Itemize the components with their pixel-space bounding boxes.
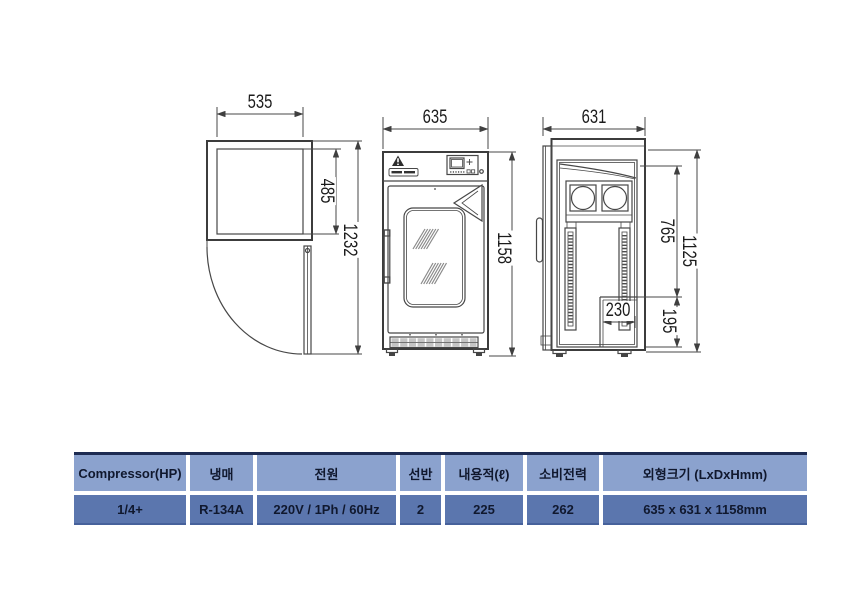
spec-header-dimensions: 외형크기 (LxDxHmm) [603,455,807,491]
ventilation-grille [390,334,478,348]
spec-sheet: 535 485 1232 635 1158 631 765 1125 230 1… [0,0,860,600]
dim-label-top-depth: 485 [316,177,336,205]
dim-label-front-height: 1158 [493,231,513,266]
dim-label-recess-height: 195 [658,307,678,335]
door-window [404,208,465,307]
fan-assembly [566,181,632,228]
dim-label-side-depth: 631 [580,108,608,128]
spec-value-shelf: 2 [400,495,441,525]
dim-label-top-width: 535 [246,93,274,113]
fan-circle-right [604,187,627,210]
spec-header-compressor: Compressor(HP) [74,455,186,491]
spec-header-refrigerant: 냉매 [190,455,253,491]
dim-label-door-swing: 1232 [339,222,359,258]
power-indicator [480,170,484,174]
drawing-canvas [0,0,860,445]
spec-value-refrigerant: R-134A [190,495,253,525]
side-door-handle [537,218,543,262]
spec-value-consumption: 262 [527,495,599,525]
dim-label-recess-depth: 230 [604,301,632,321]
warning-icon [392,156,404,167]
spec-value-power: 220V / 1Ph / 60Hz [257,495,396,525]
dim-label-side-height: 1125 [678,234,698,269]
door-handle [384,230,390,283]
name-plate [389,169,418,177]
feet [387,349,485,356]
technical-drawing: 535 485 1232 635 1158 631 765 1125 230 1… [0,0,860,445]
glass-reflection [413,229,447,284]
side-feet [553,350,631,357]
spec-table: Compressor(HP) 냉매 전원 선반 내용적(ℓ) 소비전력 외형크기… [74,452,807,525]
spec-table-grid: Compressor(HP) 냉매 전원 선반 내용적(ℓ) 소비전력 외형크기… [74,455,807,525]
spec-header-shelf: 선반 [400,455,441,491]
spec-value-capacity: 225 [445,495,523,525]
dim-label-front-width: 635 [421,108,449,128]
spec-header-power: 전원 [257,455,396,491]
fan-circle-left [572,187,595,210]
spec-value-compressor: 1/4+ [74,495,186,525]
control-panel-display [447,156,478,175]
spec-header-capacity: 내용적(ℓ) [445,455,523,491]
spec-header-consumption: 소비전력 [527,455,599,491]
spec-value-dimensions: 635 x 631 x 1158mm [603,495,807,525]
corner-banner [454,185,482,221]
dim-label-interior-height: 765 [656,217,676,245]
